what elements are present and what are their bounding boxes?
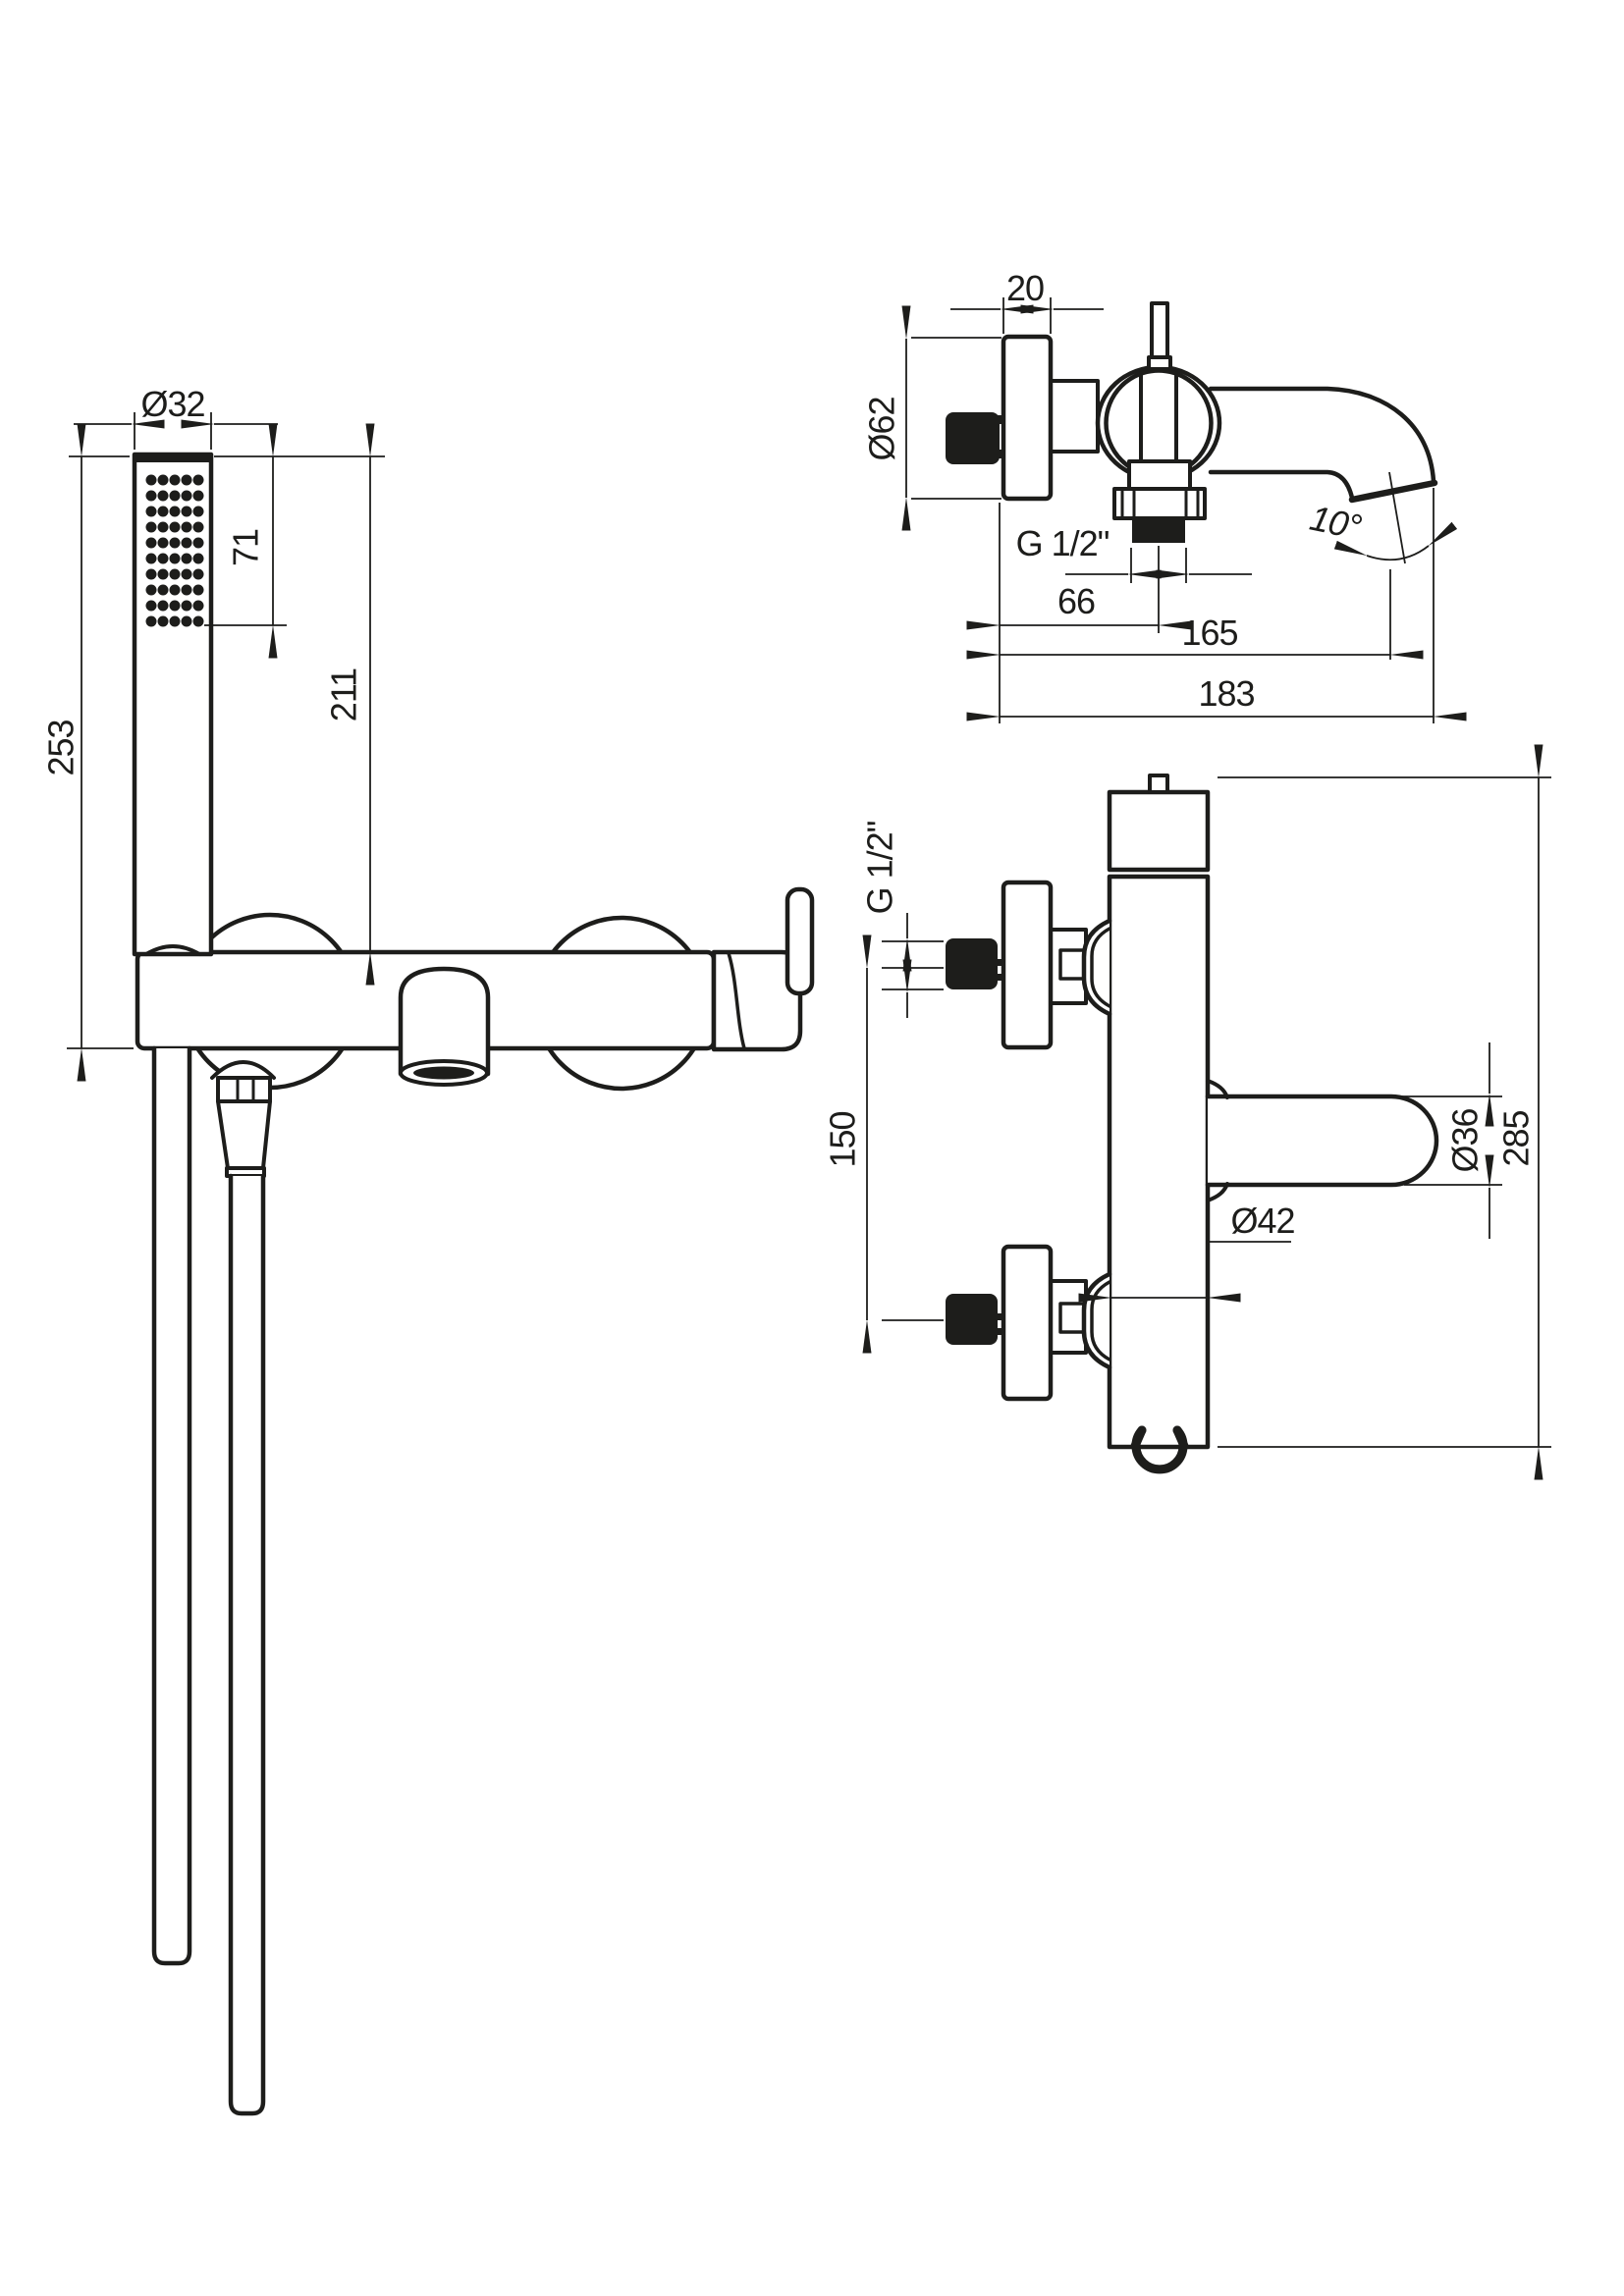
spray-dot: [170, 601, 181, 612]
spray-dot: [182, 522, 192, 533]
lower-nipple-tab-b: [996, 1328, 1003, 1335]
spout-mouth-inner: [413, 1067, 474, 1080]
mixer-body-side: [1110, 877, 1208, 1447]
spray-dot: [146, 601, 157, 612]
dim-label-rosette-depth: 20: [1006, 268, 1044, 308]
upper-nipple-black: [946, 938, 998, 989]
spray-dot: [158, 522, 169, 533]
spray-dot: [182, 601, 192, 612]
handle-stem: [1152, 303, 1167, 362]
spray-dot: [193, 585, 204, 596]
spray-dot: [170, 522, 181, 533]
upper-nipple-tab-b: [996, 974, 1003, 981]
dim-label-overall-length: 253: [41, 720, 81, 775]
dim-label-spout-angle: 10°: [1307, 498, 1365, 548]
spray-dot: [146, 554, 157, 564]
spray-dot: [158, 491, 169, 502]
spray-dot: [146, 569, 157, 580]
spray-dot: [158, 554, 169, 564]
spray-dot: [182, 491, 192, 502]
spray-dot: [170, 616, 181, 627]
spout-bottom-line: [1211, 472, 1352, 498]
bath-mixer-dimension-drawing: Ø32 71 211 253: [0, 0, 1624, 2296]
spray-dot: [193, 616, 204, 627]
outlet-neck: [1129, 461, 1190, 489]
spray-dot: [193, 601, 204, 612]
spray-dot: [182, 475, 192, 486]
spray-dot: [193, 507, 204, 517]
spray-dot: [146, 585, 157, 596]
lever-capsule-fill: [1208, 1096, 1436, 1185]
lever-handle-front: [787, 889, 812, 993]
spray-dot: [158, 601, 169, 612]
spout-top-line: [1211, 389, 1434, 481]
spray-dot: [170, 538, 181, 549]
spray-dot: [158, 538, 169, 549]
dim-label-spout-reach: 165: [1181, 613, 1237, 653]
lower-nipple-tab-a: [996, 1313, 1003, 1320]
lower-rosette-side: [1003, 1247, 1051, 1399]
dim-label-rosette-diameter: Ø62: [862, 397, 902, 460]
technical-drawing-page: Ø32 71 211 253: [0, 0, 1624, 2296]
wall-nipple-black: [946, 412, 1000, 464]
spray-dot: [170, 569, 181, 580]
lower-nipple-black: [946, 1294, 998, 1345]
rosette-side: [1003, 337, 1051, 499]
spray-dot: [146, 475, 157, 486]
spout-profile-view: 20 Ø62 G 1/2" 66 165 183 10°: [862, 268, 1435, 723]
dim-label-overall-reach: 183: [1198, 673, 1254, 714]
spray-dot: [158, 507, 169, 517]
body-profile-view: G 1/2" 150 Ø36 285 Ø42: [823, 775, 1552, 1469]
spray-dot: [182, 538, 192, 549]
handle-stem-base: [1149, 357, 1170, 369]
spray-dot: [158, 569, 169, 580]
upper-eccentric: [1051, 930, 1086, 1003]
dim-label-spray-face-length: 71: [226, 529, 266, 566]
spray-dot: [182, 569, 192, 580]
spray-dot: [158, 616, 169, 627]
spray-dot: [182, 507, 192, 517]
dim-label-overall-height: 285: [1496, 1110, 1537, 1166]
dim-label-thread-offset: 66: [1057, 581, 1095, 621]
upper-rosette-side: [1003, 882, 1051, 1047]
spray-dot: [193, 554, 204, 564]
front-view: Ø32 71 211 253: [41, 384, 813, 2113]
spray-dot: [158, 585, 169, 596]
spray-dot: [182, 585, 192, 596]
spray-dot: [146, 507, 157, 517]
spray-dot: [146, 538, 157, 549]
dim-label-handset-length: 211: [324, 668, 364, 721]
outlet-thread-black: [1132, 518, 1185, 543]
spray-dot: [170, 554, 181, 564]
spray-dot: [146, 522, 157, 533]
spray-dot: [193, 538, 204, 549]
cone-nut: [218, 1078, 270, 1101]
spray-dot: [170, 507, 181, 517]
dim-label-inlet-spacing: 150: [823, 1111, 863, 1167]
upper-nipple-tab-a: [996, 959, 1003, 966]
spray-dot: [146, 491, 157, 502]
spray-dot: [158, 475, 169, 486]
spray-dot: [193, 522, 204, 533]
spout-front: [401, 969, 488, 1074]
cap-tab: [1150, 775, 1167, 792]
handset-tail-tube: [154, 1048, 189, 1963]
nipple-tab-top: [996, 415, 1003, 424]
spray-dot: [182, 554, 192, 564]
spray-dot: [170, 475, 181, 486]
dim-label-lever-diameter: Ø36: [1445, 1108, 1486, 1172]
outlet-nut: [1114, 489, 1205, 518]
dim-label-inlet-thread: G 1/2": [860, 821, 900, 914]
dim-label-head-diameter: Ø32: [140, 384, 204, 424]
cone-taper: [218, 1101, 270, 1168]
dim-label-body-diameter: Ø42: [1230, 1201, 1294, 1241]
nipple-tab-bottom: [996, 450, 1003, 458]
body-top-cap: [1110, 792, 1208, 870]
spray-dot: [193, 491, 204, 502]
spray-dot: [146, 616, 157, 627]
spray-dot: [193, 475, 204, 486]
dim-label-outlet-thread: G 1/2": [1016, 523, 1110, 563]
valve-connector: [1051, 381, 1098, 452]
lower-eccentric: [1051, 1281, 1086, 1353]
hand-shower-top-cap: [135, 453, 211, 462]
shower-hose: [231, 1176, 263, 2113]
spray-dot: [182, 616, 192, 627]
spray-dot: [170, 491, 181, 502]
spray-dot: [170, 585, 181, 596]
spray-dot: [193, 569, 204, 580]
